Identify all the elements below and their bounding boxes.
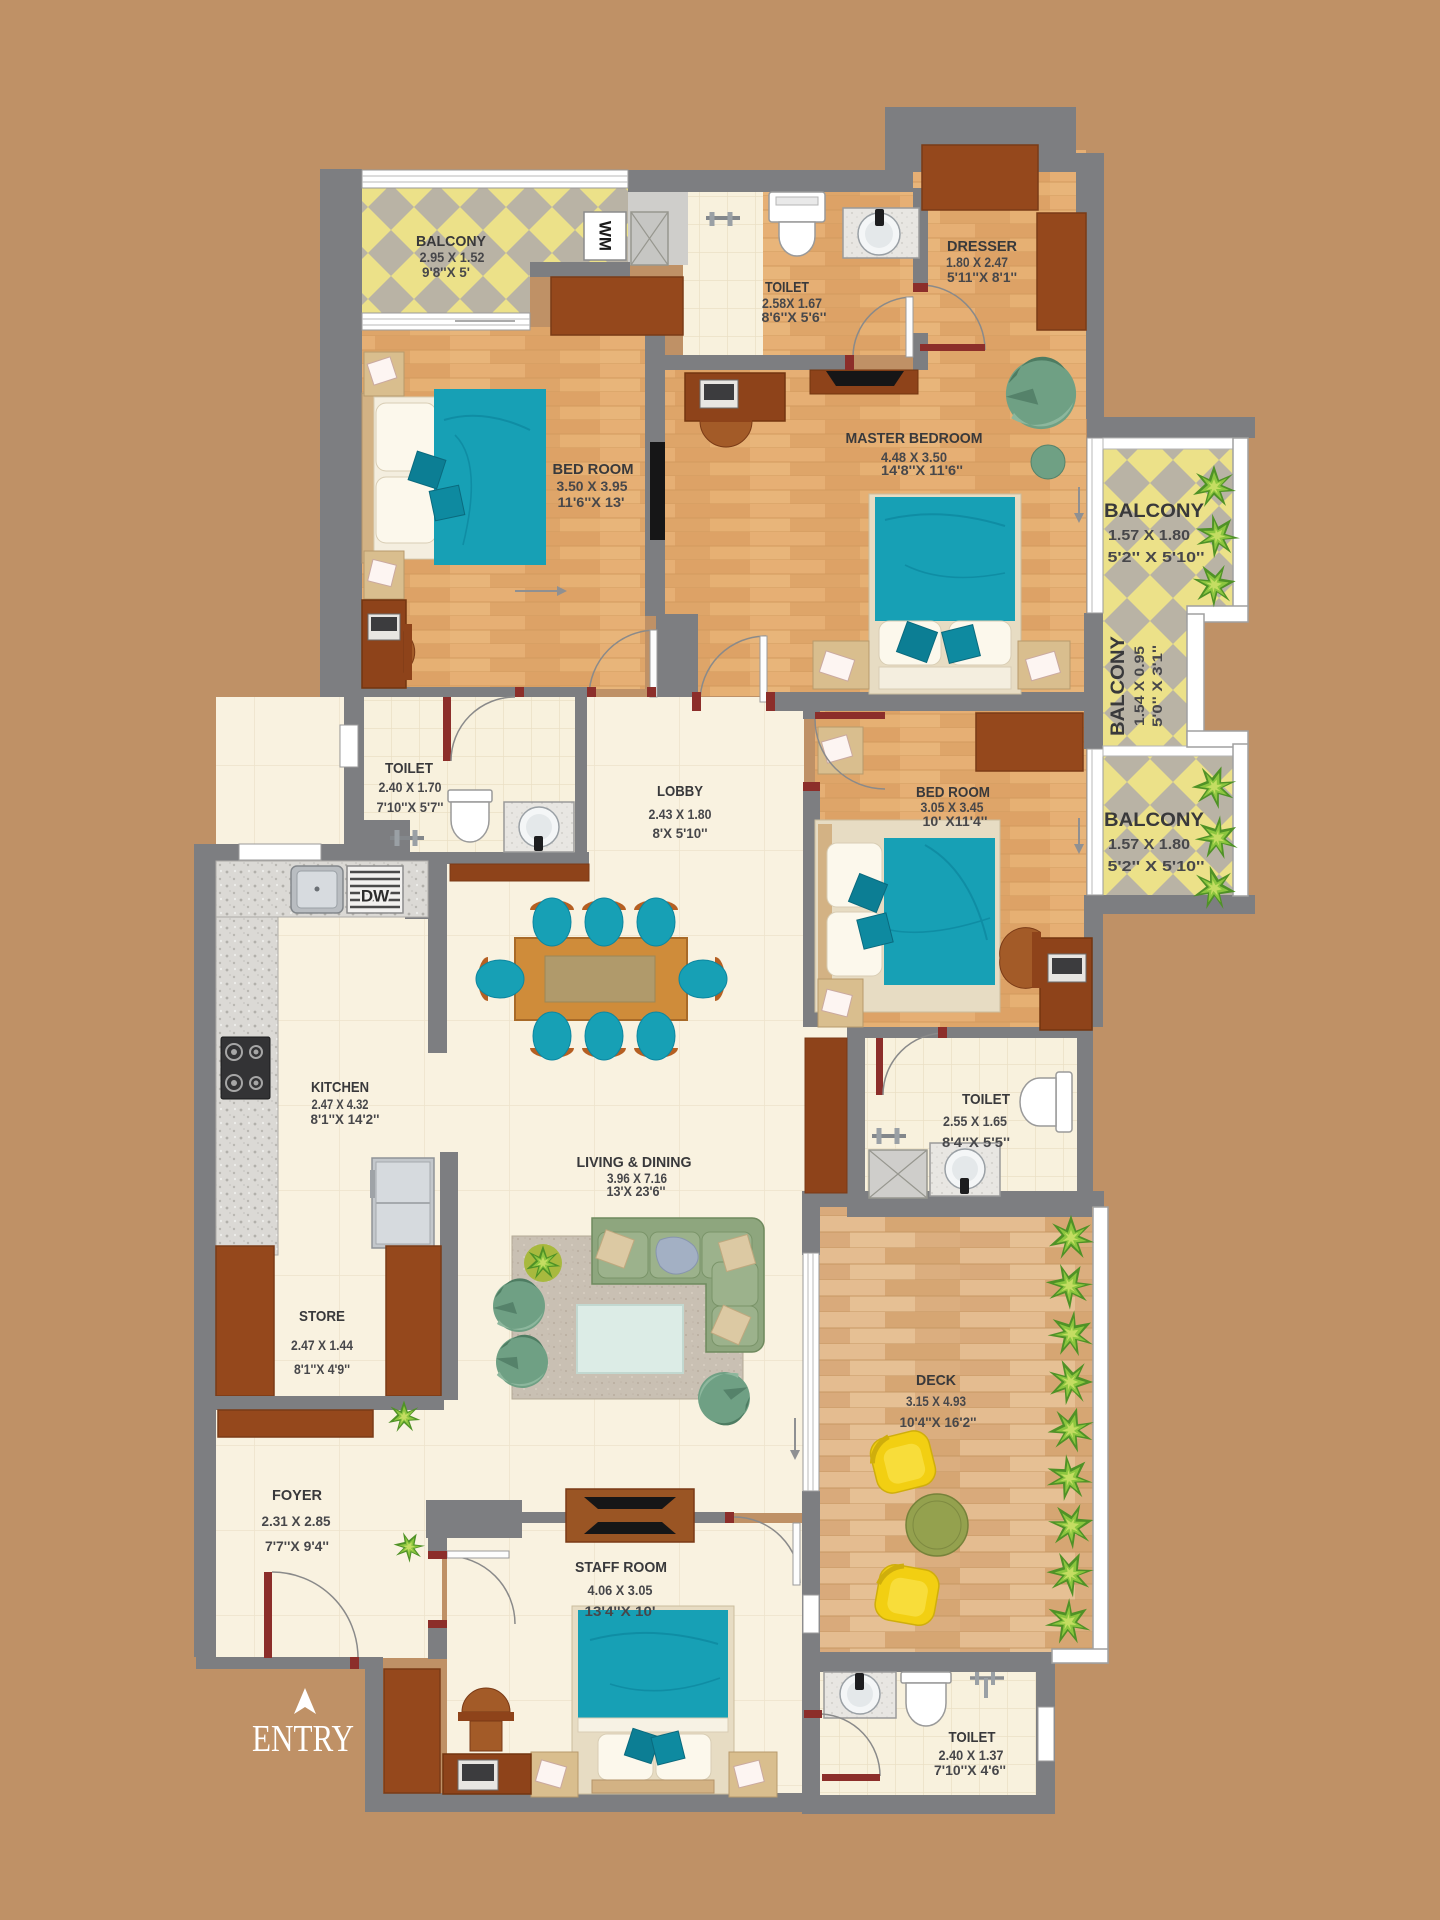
svg-text:STAFF ROOM: STAFF ROOM [575,1559,667,1576]
svg-text:5'2'' X 5'10'': 5'2'' X 5'10'' [1108,549,1205,566]
svg-text:14'8''X 11'6'': 14'8''X 11'6'' [881,462,963,478]
svg-text:STORE: STORE [299,1308,345,1325]
svg-text:2.31 X 2.85: 2.31 X 2.85 [262,1513,331,1529]
svg-text:TOILET: TOILET [765,279,809,296]
svg-text:7'10''X 4'6'': 7'10''X 4'6'' [934,1762,1006,1778]
svg-text:BALCONY: BALCONY [1104,810,1204,831]
svg-text:1.57 X 1.80: 1.57 X 1.80 [1108,836,1190,853]
svg-text:13'X 23'6'': 13'X 23'6'' [607,1183,666,1199]
svg-text:2.47 X 1.44: 2.47 X 1.44 [291,1337,353,1353]
svg-text:MASTER BEDROOM: MASTER BEDROOM [846,430,983,447]
svg-text:BALCONY: BALCONY [1108,636,1129,736]
svg-text:TOILET: TOILET [385,760,433,777]
svg-text:BED ROOM: BED ROOM [553,461,634,478]
svg-text:WM: WM [596,221,615,251]
svg-text:2.95 X 1.52: 2.95 X 1.52 [420,249,485,265]
svg-text:2.40 X 1.37: 2.40 X 1.37 [939,1747,1004,1763]
svg-text:10' X11'4'': 10' X11'4'' [923,813,988,829]
svg-text:TOILET: TOILET [962,1091,1010,1108]
svg-text:TOILET: TOILET [949,1729,996,1746]
svg-text:1.54 X 0.95: 1.54 X 0.95 [1131,646,1147,726]
svg-text:5'11''X 8'1'': 5'11''X 8'1'' [947,269,1017,285]
svg-text:5'2'' X 5'10'': 5'2'' X 5'10'' [1108,858,1205,875]
svg-text:ENTRY: ENTRY [252,1718,354,1760]
svg-text:10'4''X 16'2'': 10'4''X 16'2'' [900,1414,977,1430]
svg-text:DW: DW [361,887,390,906]
svg-text:LIVING & DINING: LIVING & DINING [577,1154,692,1171]
svg-text:8'4''X 5'5'': 8'4''X 5'5'' [942,1134,1010,1150]
svg-text:BALCONY: BALCONY [1104,501,1204,522]
svg-text:7'7''X 9'4'': 7'7''X 9'4'' [265,1538,329,1554]
svg-text:2.43 X 1.80: 2.43 X 1.80 [649,806,712,822]
svg-text:8'1''X 4'9'': 8'1''X 4'9'' [294,1361,350,1377]
svg-text:FOYER: FOYER [272,1487,322,1504]
svg-text:9'8''X 5': 9'8''X 5' [422,264,470,280]
svg-text:8'1''X 14'2'': 8'1''X 14'2'' [311,1111,380,1127]
svg-text:2.47 X 4.32: 2.47 X 4.32 [312,1096,369,1112]
svg-text:1.80 X 2.47: 1.80 X 2.47 [946,254,1008,270]
svg-text:11'6''X 13': 11'6''X 13' [558,494,625,510]
svg-text:KITCHEN: KITCHEN [311,1079,369,1096]
svg-text:5'0'' X 3'1'': 5'0'' X 3'1'' [1149,645,1165,727]
svg-text:1.57 X 1.80: 1.57 X 1.80 [1108,527,1190,544]
svg-text:3.50 X 3.95: 3.50 X 3.95 [557,478,628,494]
svg-text:8'X 5'10'': 8'X 5'10'' [653,825,708,841]
svg-text:13'4''X 10': 13'4''X 10' [585,1603,656,1619]
svg-text:DRESSER: DRESSER [947,238,1017,255]
svg-text:LOBBY: LOBBY [657,783,703,800]
svg-text:3.15 X 4.93: 3.15 X 4.93 [906,1393,966,1409]
svg-text:8'6''X 5'6'': 8'6''X 5'6'' [762,309,827,325]
svg-text:2.40 X 1.70: 2.40 X 1.70 [379,779,442,795]
svg-text:2.55 X 1.65: 2.55 X 1.65 [943,1113,1007,1129]
svg-text:DECK: DECK [916,1372,956,1389]
svg-text:7'10''X 5'7'': 7'10''X 5'7'' [377,799,444,815]
svg-text:4.06 X 3.05: 4.06 X 3.05 [588,1582,653,1598]
svg-text:BALCONY: BALCONY [416,233,486,250]
